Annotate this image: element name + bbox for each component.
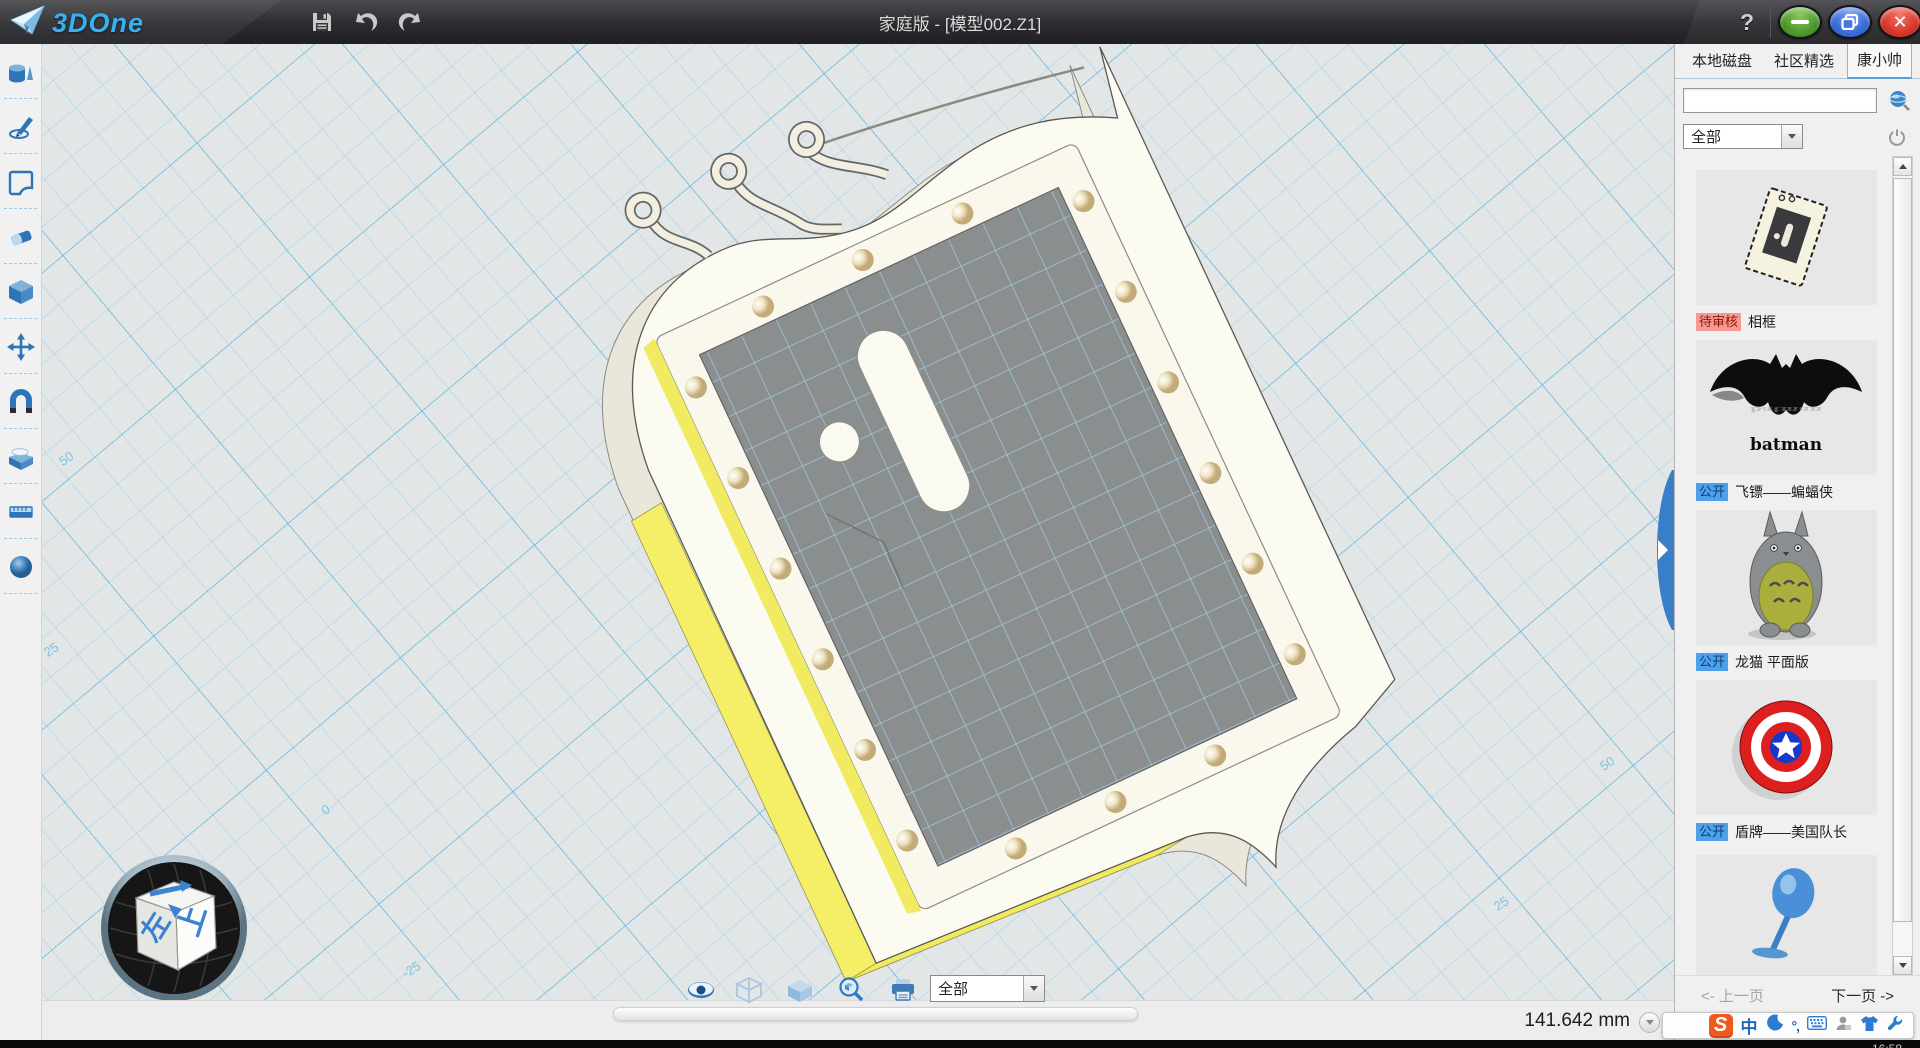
item-title[interactable]: 盾牌——美国队长 <box>1735 822 1847 842</box>
panel-expand-handle[interactable] <box>1646 470 1674 630</box>
list-item: 公开 盾牌——美国队长 <box>1696 680 1877 842</box>
printer-icon <box>889 977 917 1003</box>
title-bar: 3DOne 家庭版 - [模型002.Z1] ? ✕ <box>0 0 1920 44</box>
category-filter-dropdown[interactable]: 全部 <box>1683 124 1803 149</box>
item-title[interactable]: 相框 <box>1748 312 1776 332</box>
bottom-dock-bar[interactable] <box>613 1007 1138 1021</box>
triangle-up-icon <box>1899 164 1907 169</box>
tab-community-featured[interactable]: 社区精选 <box>1765 44 1843 78</box>
sogou-logo-icon[interactable]: S <box>1709 1014 1733 1038</box>
search-globe-icon <box>1887 89 1911 113</box>
sphere-icon <box>7 553 35 581</box>
tool-feature-cube[interactable] <box>0 264 41 319</box>
dropdown-arrow-button[interactable] <box>1023 976 1044 1001</box>
tool-eraser[interactable] <box>0 209 41 264</box>
left-toolbar <box>0 44 42 1048</box>
scrollbar-thumb[interactable] <box>1893 178 1912 922</box>
viewport-3d[interactable]: 50 25 0 -25 25 50 <box>42 44 1674 1048</box>
measurement-unit-dropdown[interactable] <box>1639 1012 1660 1033</box>
wireframe-cube-icon <box>735 976 763 1004</box>
system-clock: 16:58 <box>1872 1042 1902 1048</box>
sketch-pencil-icon <box>7 113 35 141</box>
tool-magnet-assembly[interactable] <box>0 374 41 429</box>
library-sidebar: 本地磁盘 社区精选 康小帅 全部 <box>1674 44 1920 1040</box>
maximize-button[interactable] <box>1828 5 1872 39</box>
tool-render-sphere[interactable] <box>0 539 41 594</box>
thumbnail-captain-shield[interactable] <box>1696 680 1877 815</box>
tool-sketch-plane[interactable] <box>0 154 41 209</box>
close-button[interactable]: ✕ <box>1878 5 1920 39</box>
sketch-plane-icon <box>7 168 35 196</box>
measurement-readout: 141.642 mm <box>1524 1010 1630 1032</box>
undo-button[interactable] <box>352 9 382 35</box>
chevron-down-icon <box>1646 1020 1654 1025</box>
close-icon: ✕ <box>1892 13 1907 31</box>
sidebar-tabs: 本地磁盘 社区精选 康小帅 <box>1675 44 1920 79</box>
visibility-eye-button[interactable] <box>684 974 718 1006</box>
ime-user-icon[interactable] <box>1835 1015 1852 1037</box>
triangle-down-icon <box>1899 963 1907 968</box>
ime-toolbar[interactable]: S 中 °, <box>1662 1012 1914 1039</box>
tool-measure-ruler[interactable] <box>0 484 41 539</box>
item-label-row: 公开 盾牌——美国队长 <box>1696 822 1877 842</box>
restore-icon <box>1841 14 1859 30</box>
search-button[interactable] <box>1886 88 1912 114</box>
display-filter-dropdown[interactable]: 全部 <box>930 975 1045 1002</box>
scroll-down-button[interactable] <box>1893 956 1912 975</box>
ime-moon-icon[interactable] <box>1766 1014 1784 1037</box>
list-item: 公开 龙猫 平面版 <box>1696 510 1877 672</box>
batman-caption-reflection: batman <box>1750 405 1823 414</box>
list-item: 待审核 相框 <box>1696 170 1877 332</box>
list-item <box>1696 855 1877 975</box>
magnet-icon <box>7 388 35 416</box>
filter-row: 全部 <box>1675 124 1920 151</box>
status-badge: 公开 <box>1696 823 1728 841</box>
eye-icon <box>686 979 716 1001</box>
thumbnail-blue-pin[interactable] <box>1696 855 1877 975</box>
ruler-icon <box>7 498 35 526</box>
thumbnail-totoro[interactable] <box>1696 510 1877 645</box>
list-scrollbar[interactable] <box>1892 156 1913 976</box>
search-input[interactable] <box>1683 88 1877 113</box>
list-item: batman batman 公开 飞镖——蝙蝠侠 <box>1696 340 1877 502</box>
chevron-down-icon <box>1030 986 1038 991</box>
status-badge: 公开 <box>1696 483 1728 501</box>
item-title[interactable]: 飞镖——蝙蝠侠 <box>1735 482 1833 502</box>
wireframe-display-button[interactable] <box>732 974 766 1006</box>
tool-move-transform[interactable] <box>0 319 41 374</box>
ime-tools-wrench-icon[interactable] <box>1887 1015 1904 1037</box>
display-filter-value: 全部 <box>931 978 1023 999</box>
ime-language-toggle[interactable]: 中 <box>1741 1013 1758 1038</box>
magnifier-icon <box>837 976 865 1004</box>
thumbnail-photo-frame[interactable] <box>1696 170 1877 305</box>
shaded-cube-icon <box>786 976 814 1004</box>
material-box-icon <box>7 443 35 471</box>
minimize-button[interactable] <box>1778 5 1822 39</box>
ime-keyboard-icon[interactable] <box>1807 1016 1827 1035</box>
zoom-view-button[interactable] <box>834 974 868 1006</box>
tab-user-account[interactable]: 康小帅 <box>1847 42 1912 79</box>
model-photo-frame[interactable] <box>42 44 1674 1048</box>
tool-sketch-draw[interactable] <box>0 99 41 154</box>
tool-primitive-solids[interactable] <box>0 44 41 99</box>
category-filter-value: 全部 <box>1684 126 1781 147</box>
power-icon <box>1888 128 1906 146</box>
app-logo: 3DOne <box>10 4 144 43</box>
status-badge: 待审核 <box>1696 313 1741 331</box>
shaded-display-button[interactable] <box>783 974 817 1006</box>
print-button[interactable] <box>886 974 920 1006</box>
pagination-bar: <- 上一页 下一页 -> <box>1675 975 1920 1009</box>
item-label-row: 公开 飞镖——蝙蝠侠 <box>1696 482 1877 502</box>
move-arrows-icon <box>7 333 35 361</box>
feature-cube-icon <box>7 278 35 306</box>
eraser-icon <box>7 223 35 251</box>
status-badge: 公开 <box>1696 653 1728 671</box>
window-title: 家庭版 - [模型002.Z1] <box>0 0 1920 44</box>
previous-page-button[interactable]: <- 上一页 <box>1701 985 1764 1006</box>
paper-plane-icon <box>10 4 46 43</box>
chevron-down-icon <box>1788 134 1796 139</box>
tab-local-disk[interactable]: 本地磁盘 <box>1683 44 1761 78</box>
ime-skin-shirt-icon[interactable] <box>1860 1015 1879 1037</box>
dropdown-arrow-button[interactable] <box>1781 125 1802 148</box>
batman-caption: batman <box>1750 435 1822 455</box>
item-label-row: 待审核 相框 <box>1696 312 1877 332</box>
redo-button[interactable] <box>394 9 424 35</box>
tool-material-box[interactable] <box>0 429 41 484</box>
save-button[interactable] <box>307 9 337 35</box>
os-taskbar-edge: 16:58 <box>0 1040 1920 1048</box>
search-row <box>1675 88 1920 116</box>
item-label-row: 公开 龙猫 平面版 <box>1696 652 1877 672</box>
ime-punctuation-toggle[interactable]: °, <box>1792 1018 1800 1034</box>
minimize-icon <box>1791 20 1809 24</box>
view-cube[interactable]: 上 左 <box>98 852 250 1004</box>
help-button[interactable]: ? <box>1732 7 1762 37</box>
logout-power-button[interactable] <box>1886 126 1908 148</box>
primitive-solids-icon <box>7 58 35 86</box>
model-list: 待审核 相框 batman batman 公开 飞镖——蝙蝠侠 <box>1675 158 1920 975</box>
next-page-button[interactable]: 下一页 -> <box>1831 985 1894 1006</box>
thumbnail-batman-logo[interactable]: batman batman <box>1696 340 1877 475</box>
titlebar-separator <box>1770 6 1771 38</box>
item-title[interactable]: 龙猫 平面版 <box>1735 652 1809 672</box>
scroll-up-button[interactable] <box>1893 157 1912 176</box>
app-logo-text: 3DOne <box>52 8 144 39</box>
